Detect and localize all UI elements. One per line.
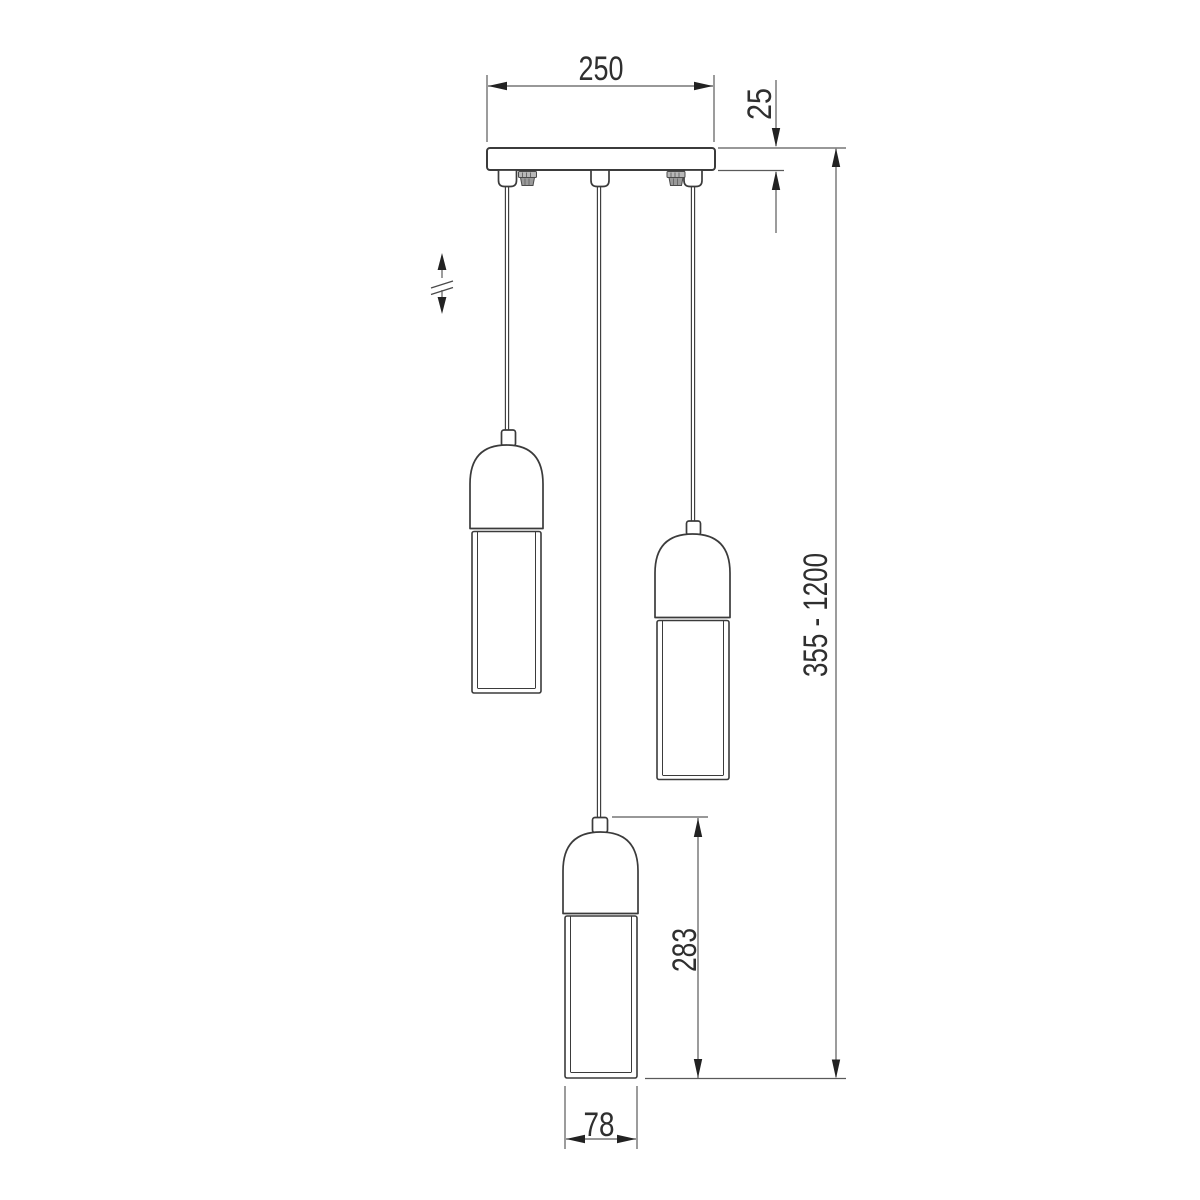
arrowhead-right [617, 1135, 636, 1143]
dim-shade-diameter: 78 [565, 1086, 637, 1149]
screw-body [669, 178, 683, 186]
lamp-socket [593, 818, 608, 833]
arrowhead-down [772, 128, 780, 147]
arrowhead-left [566, 1135, 585, 1143]
pendant-shade-left [470, 430, 543, 693]
dimension-label: 250 [579, 50, 624, 88]
lamp-socket [502, 430, 516, 446]
arrowhead-right [694, 82, 713, 90]
dimension-label: 78 [584, 1106, 615, 1144]
cord-grip-left [499, 170, 517, 187]
glass-cylinder [472, 532, 541, 694]
drawing-canvas: 250 25 355 - 1200 283 78 [0, 0, 1200, 1200]
cord-grip-right [684, 170, 702, 187]
pendant-shade-right [655, 521, 730, 780]
shade-dome [655, 534, 730, 618]
arrowhead-up [772, 171, 780, 190]
dimension-label: 25 [741, 88, 779, 120]
ceiling-canopy [487, 148, 715, 187]
arrowhead-down-icon [438, 297, 447, 314]
cord-left [505, 187, 508, 431]
cord-right [691, 187, 694, 522]
glass-cylinder [657, 621, 729, 780]
height-adjust-icon [431, 253, 453, 314]
dimension-label: 283 [666, 928, 704, 972]
arrowhead-down [832, 1060, 840, 1079]
arrowhead-up-icon [438, 253, 447, 270]
pendant-shade-front [563, 818, 638, 1079]
arrowhead-up [832, 148, 840, 167]
cord-center [597, 187, 600, 818]
thumb-screw-right [667, 172, 685, 186]
cord-grip-center [591, 170, 609, 187]
dim-canopy-width: 250 [487, 50, 714, 142]
screw-body [521, 178, 535, 186]
dimension-label: 355 - 1200 [797, 553, 835, 677]
canopy-plate [487, 148, 715, 170]
arrowhead-down [694, 1059, 702, 1078]
dim-canopy-thickness: 25 [718, 80, 846, 233]
screw-flange [519, 172, 537, 178]
arrowhead-up [694, 818, 702, 837]
glass-cylinder [565, 916, 637, 1078]
screw-flange [667, 172, 685, 178]
shade-dome [563, 832, 638, 914]
shade-dome [470, 445, 543, 529]
arrowhead-left [488, 82, 507, 90]
technical-drawing-page: 250 25 355 - 1200 283 78 [0, 0, 1200, 1200]
lamp-socket [687, 521, 701, 535]
thumb-screw-left [519, 172, 537, 186]
